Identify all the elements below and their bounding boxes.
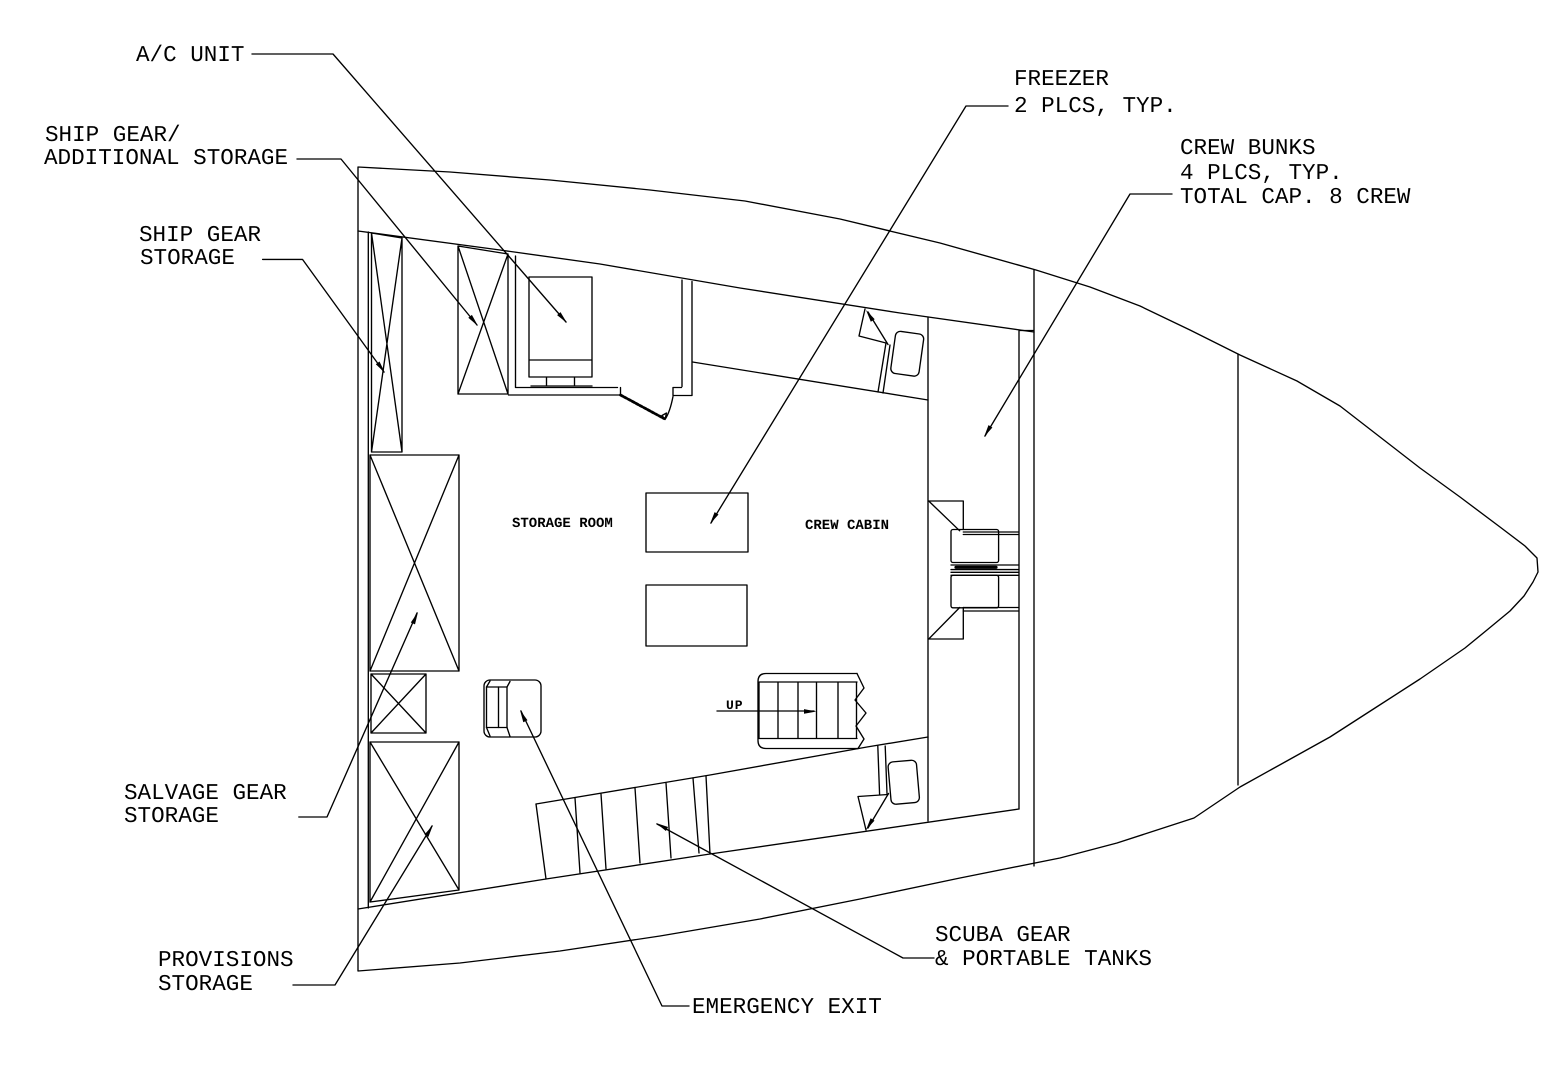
svg-text:PROVISIONS: PROVISIONS [158,947,294,973]
svg-text:A/C UNIT: A/C UNIT [136,42,244,68]
svg-text:CREW BUNKS: CREW BUNKS [1180,135,1316,161]
svg-text:EMERGENCY EXIT: EMERGENCY EXIT [692,994,882,1020]
svg-text:& PORTABLE TANKS: & PORTABLE TANKS [935,946,1152,972]
svg-text:4 PLCS, TYP.: 4 PLCS, TYP. [1180,160,1343,186]
svg-text:STORAGE: STORAGE [140,245,235,271]
svg-text:TOTAL CAP. 8 CREW: TOTAL CAP. 8 CREW [1180,184,1411,210]
svg-text:2 PLCS, TYP.: 2 PLCS, TYP. [1014,93,1177,119]
svg-text:STORAGE ROOM: STORAGE ROOM [512,516,613,532]
svg-text:STORAGE: STORAGE [158,971,253,997]
svg-text:CREW CABIN: CREW CABIN [805,518,889,534]
svg-text:STORAGE: STORAGE [124,803,219,829]
svg-text:SCUBA GEAR: SCUBA GEAR [935,922,1071,948]
svg-text:FREEZER: FREEZER [1014,66,1109,92]
svg-text:UP: UP [726,698,744,713]
svg-text:ADDITIONAL STORAGE: ADDITIONAL STORAGE [44,145,288,171]
